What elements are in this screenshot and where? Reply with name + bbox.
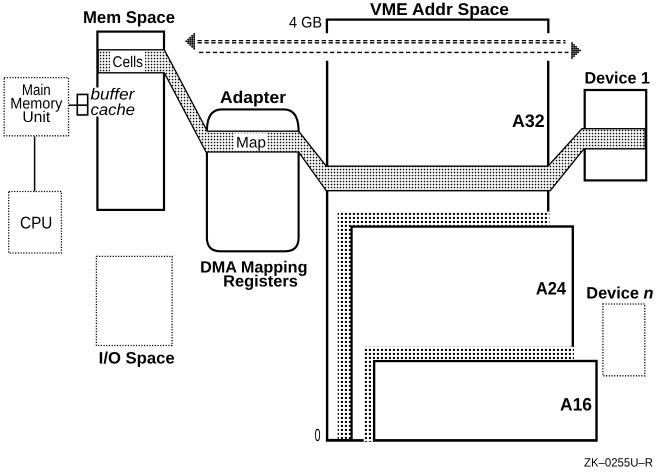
svg-text:0: 0 [315,425,321,445]
svg-text:cache: cache [91,102,136,119]
svg-text:buffer: buffer [91,86,136,103]
svg-text:Unit: Unit [22,109,51,126]
svg-text:Map: Map [236,135,266,152]
svg-text:Device n: Device n [586,284,653,302]
svg-text:Device 1: Device 1 [584,69,650,87]
svg-text:Cells: Cells [113,54,144,71]
svg-text:A16: A16 [560,394,592,414]
svg-text:VME Addr Space: VME Addr Space [370,0,509,19]
svg-text:Adapter: Adapter [220,88,286,107]
svg-text:Registers: Registers [223,273,298,291]
svg-text:4 GB: 4 GB [289,15,322,32]
svg-text:A24: A24 [536,279,566,299]
svg-text:Mem Space: Mem Space [83,8,175,27]
svg-text:CPU: CPU [20,213,52,232]
svg-text:I/O Space: I/O Space [99,350,175,368]
svg-text:ZK–0255U–R: ZK–0255U–R [584,455,653,469]
svg-text:A32: A32 [512,111,545,131]
